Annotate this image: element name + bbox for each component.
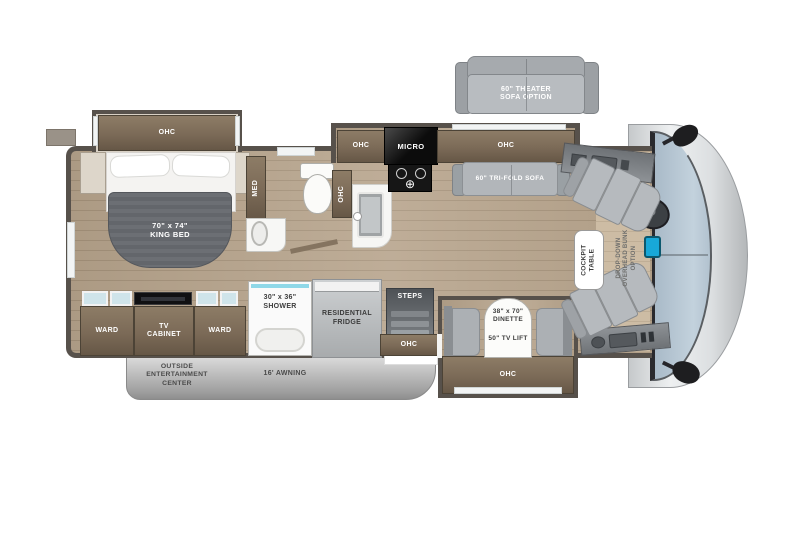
steps-label: STEPS bbox=[387, 293, 433, 301]
range-cooktop-icon: ⊕ bbox=[388, 164, 432, 192]
theater-sofa-option: 60" THEATER SOFA OPTION bbox=[455, 56, 597, 116]
bath-window bbox=[277, 147, 315, 156]
bedroom-ohc-cabinet: OHC bbox=[98, 115, 236, 151]
dinette-window bbox=[454, 387, 562, 394]
counter-top-left-b bbox=[110, 291, 132, 306]
shower-label: 30" x 36" SHOWER bbox=[249, 294, 311, 312]
wardrobe-right-label: WARD bbox=[209, 327, 232, 335]
shower-pan-icon bbox=[255, 328, 305, 352]
trifold-sofa: 60" TRI-FOLD SOFA bbox=[452, 162, 568, 196]
galley-ohc-left-label: OHC bbox=[353, 142, 370, 150]
fridge-door-top bbox=[315, 282, 379, 292]
entry-steps: STEPS bbox=[386, 288, 434, 336]
toilet-bowl-icon bbox=[303, 174, 332, 214]
wardrobe-right: WARD bbox=[194, 306, 246, 356]
steps-ohc-label: OHC bbox=[401, 341, 418, 349]
counter-top-right-a bbox=[196, 291, 218, 306]
dinette-bench-left bbox=[444, 306, 480, 358]
king-bed-mattress: 70" x 74" KING BED bbox=[108, 192, 232, 268]
dinette-slideout: OHC 38" x 70" DINETTE 50" TV LIFT bbox=[438, 296, 578, 398]
bed-slide-window-right bbox=[235, 116, 240, 146]
cockpit-table-label: COCKPIT TABLE bbox=[581, 244, 597, 275]
wardrobe-left-label: WARD bbox=[96, 327, 119, 335]
awning-label: 16' AWNING bbox=[240, 370, 330, 379]
rear-window bbox=[67, 222, 75, 278]
rear-cap-tab bbox=[46, 129, 76, 146]
bath-sink-icon bbox=[251, 221, 268, 246]
microwave-label: MICRO bbox=[398, 142, 425, 151]
galley-ohc-right-cabinet: OHC bbox=[437, 130, 575, 163]
tv-lift-label: 50" TV LIFT bbox=[485, 335, 531, 343]
galley-faucet-icon bbox=[353, 212, 362, 221]
tv-icon bbox=[134, 292, 192, 305]
entry-door-strip bbox=[384, 355, 438, 365]
counter-top-right-b bbox=[220, 291, 238, 306]
rv-floorplan-canvas: OUTSIDE ENTERTAINMENT CENTER 16' AWNING … bbox=[0, 0, 800, 545]
windshield-divider bbox=[654, 254, 708, 256]
cockpit-table: COCKPIT TABLE bbox=[574, 230, 604, 290]
med-cabinet-label: MED bbox=[252, 180, 260, 197]
bedroom-ohc-label: OHC bbox=[159, 129, 176, 137]
galley-ohc-right-label: OHC bbox=[498, 142, 515, 150]
pillow-right bbox=[172, 154, 231, 178]
steps-ohc-cabinet: OHC bbox=[380, 334, 438, 356]
theater-seat: 60" THEATER SOFA OPTION bbox=[467, 74, 585, 114]
pillow-left bbox=[110, 154, 171, 178]
tv-cabinet: TV CABINET bbox=[134, 306, 194, 356]
trifold-cushions: 60" TRI-FOLD SOFA bbox=[462, 162, 558, 196]
med-cabinet: MED bbox=[246, 156, 266, 220]
residential-fridge: RESIDENTIAL FRIDGE bbox=[312, 279, 382, 358]
entry-jamb-strip bbox=[437, 334, 442, 358]
tv-cabinet-label: TV CABINET bbox=[147, 323, 181, 340]
fridge-label: RESIDENTIAL FRIDGE bbox=[322, 310, 372, 328]
bath-ohc-label: OHC bbox=[338, 186, 346, 203]
dinette-ohc-label: OHC bbox=[500, 371, 517, 379]
trifold-sofa-label: 60" TRI-FOLD SOFA bbox=[476, 175, 545, 183]
dinette-label: 38" x 70" DINETTE bbox=[485, 308, 531, 324]
bath-ohc-cabinet: OHC bbox=[332, 170, 352, 218]
microwave: MICRO bbox=[384, 127, 438, 165]
shower: 30" x 36" SHOWER bbox=[248, 281, 312, 356]
bed-slide-window-left bbox=[93, 116, 98, 146]
counter-top-left-a bbox=[82, 291, 108, 306]
galley-ohc-left-cabinet: OHC bbox=[337, 130, 385, 163]
wardrobe-left: WARD bbox=[80, 306, 134, 356]
overhead-bunk-option-label: DROP-DOWN OVERHEAD BUNK OPTION bbox=[610, 203, 644, 313]
dinette-table-tv-lift: 38" x 70" DINETTE 50" TV LIFT bbox=[484, 298, 532, 358]
outside-entertainment-label: OUTSIDE ENTERTAINMENT CENTER bbox=[130, 363, 224, 388]
shower-glass-icon bbox=[251, 284, 309, 288]
nightstand-left bbox=[80, 152, 106, 194]
galley-sink-basin bbox=[361, 197, 380, 233]
console-cup-icon bbox=[644, 236, 661, 258]
king-bed-label: 70" x 74" KING BED bbox=[150, 221, 190, 239]
